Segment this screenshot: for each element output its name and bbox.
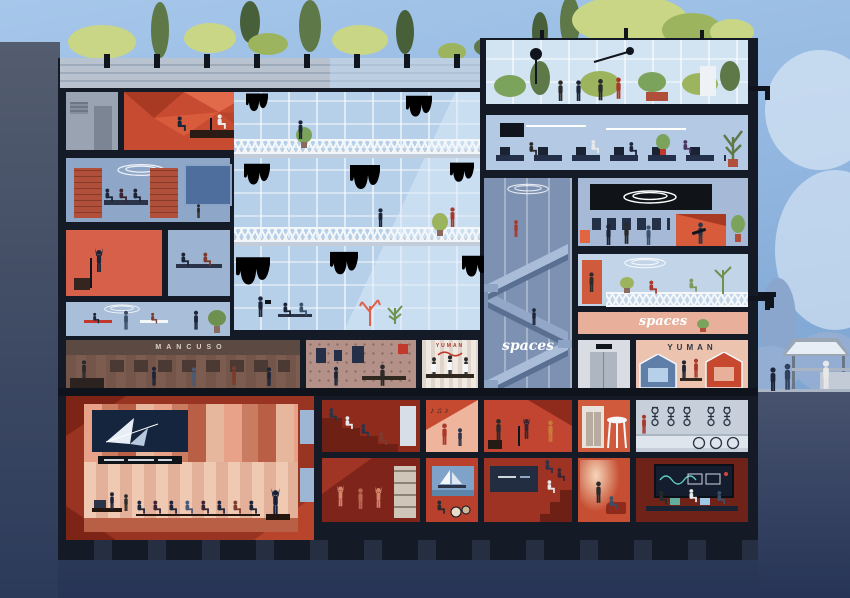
person-figure-photographer xyxy=(256,296,265,317)
plant xyxy=(618,276,636,294)
hanging-moss xyxy=(406,88,432,126)
person-figure xyxy=(108,492,116,510)
elevator-display xyxy=(596,344,612,349)
coral-plant xyxy=(358,296,382,326)
person-figure xyxy=(378,364,387,386)
person-figure xyxy=(682,139,692,154)
control-desk xyxy=(646,506,738,511)
person-figure xyxy=(574,80,583,101)
camera xyxy=(265,300,271,304)
sign-yuman-store: YUMAN xyxy=(422,343,478,349)
person-figure xyxy=(692,358,700,378)
roof-vent xyxy=(700,30,704,40)
person-figure-dancer xyxy=(336,484,345,507)
room-media xyxy=(426,458,478,522)
record-logo-scribble xyxy=(610,188,690,206)
bicycle-hanging xyxy=(650,402,660,432)
device-display xyxy=(334,350,342,361)
room-karaoke: ♪ ♫ ♪ xyxy=(426,400,478,452)
room-record-shop xyxy=(578,178,748,246)
person-figure xyxy=(296,120,305,139)
sidewalk-line xyxy=(752,389,850,392)
person-figure xyxy=(782,362,793,391)
sign-yuman-lounge: YUMAN xyxy=(636,343,748,352)
person-figure-guitarist xyxy=(494,418,503,441)
bike-wheels-row xyxy=(692,436,740,450)
person-figure xyxy=(202,252,212,266)
apron xyxy=(447,362,452,370)
room-cinema xyxy=(322,400,420,452)
facade-bracket xyxy=(748,296,774,312)
plant xyxy=(206,308,228,334)
screen-graphic xyxy=(100,414,180,448)
caption-dash xyxy=(104,459,124,461)
bicycle-hanging xyxy=(682,402,692,432)
person-figure xyxy=(456,428,464,446)
room-band xyxy=(484,400,572,452)
person-figure xyxy=(448,207,457,227)
facade-bracket xyxy=(748,86,774,102)
person-figure xyxy=(180,252,190,266)
person-figure xyxy=(298,302,308,316)
person-figure-drummer xyxy=(436,500,446,514)
plant xyxy=(430,212,450,238)
person-figure xyxy=(644,225,653,245)
room-yuman-lounge: YUMAN xyxy=(636,340,748,388)
person-figure xyxy=(194,204,203,218)
room-coworking xyxy=(168,230,230,296)
room-open-office xyxy=(486,115,748,170)
person-figure xyxy=(546,420,555,442)
mic-stand xyxy=(210,118,212,130)
vent-grille xyxy=(70,102,88,114)
room-elevator-lobby xyxy=(578,400,630,452)
person-figure-camera-operator xyxy=(596,78,605,101)
person-figure xyxy=(80,360,88,379)
person-figure xyxy=(184,500,194,514)
person-figure-singer xyxy=(522,416,531,440)
utility-door xyxy=(94,106,112,150)
person-figure xyxy=(544,460,554,473)
bookshelf xyxy=(150,168,178,218)
wall-tv xyxy=(500,123,524,137)
person-figure xyxy=(622,222,631,244)
roof-vent xyxy=(624,28,628,40)
person-figure-dancer xyxy=(374,486,383,508)
store-shelf xyxy=(110,360,290,372)
bicycle-hanging xyxy=(706,402,716,432)
plant-tall xyxy=(722,125,744,167)
left-wall xyxy=(0,42,60,598)
person-figure xyxy=(688,488,698,503)
elevator-door xyxy=(594,412,601,446)
parapet-posts xyxy=(60,54,480,68)
room-bike-storage xyxy=(636,400,748,452)
stair-core: spaces xyxy=(484,178,572,388)
stool-table xyxy=(606,414,628,450)
drum-kit xyxy=(450,502,472,518)
room-tech-store xyxy=(306,340,416,388)
device-display xyxy=(316,348,326,363)
person-figure-dancer xyxy=(356,488,365,509)
plant xyxy=(654,133,672,157)
balcony-railing xyxy=(234,139,480,154)
room-roof-greenhouse xyxy=(486,40,748,104)
room-yuman-store: YUMAN xyxy=(422,340,478,388)
lounge-screen xyxy=(490,466,538,492)
plant-sapling xyxy=(712,262,734,296)
person-figure xyxy=(378,432,388,445)
person-figure xyxy=(118,188,128,202)
person-figure xyxy=(440,422,449,446)
bicycle-hanging xyxy=(666,402,676,432)
screen-dash xyxy=(520,476,530,478)
foundation-columns xyxy=(58,540,758,560)
elevator-door xyxy=(590,352,604,388)
plant xyxy=(730,214,746,244)
monitor-glow xyxy=(700,498,710,505)
atrium xyxy=(234,92,480,330)
room-utility xyxy=(66,92,118,150)
amp-box xyxy=(488,440,502,449)
mixing-table xyxy=(92,508,122,512)
bicycle-hanging xyxy=(722,402,732,432)
booth-window xyxy=(300,468,314,502)
sailboat-graphic xyxy=(432,466,474,496)
person-figure xyxy=(820,358,832,391)
person-figure xyxy=(216,114,227,129)
apron xyxy=(463,364,468,372)
person-figure xyxy=(122,310,130,330)
person-figure xyxy=(640,414,648,434)
person-figure xyxy=(150,312,158,324)
chair-row-line xyxy=(136,514,260,516)
person-figure xyxy=(282,302,292,316)
mixer-gear xyxy=(94,500,106,508)
person-figure xyxy=(328,408,338,421)
guitar-booth xyxy=(676,214,726,246)
person-figure xyxy=(376,208,385,227)
podium xyxy=(266,514,290,520)
ground-below xyxy=(58,558,758,598)
atrium-sheen xyxy=(234,92,480,330)
building-cross-section-scene: MANCUSO YUMAN xyxy=(0,0,850,598)
stage-platform xyxy=(70,378,104,388)
person-figure xyxy=(92,312,100,324)
plant xyxy=(696,318,710,332)
person-figure xyxy=(152,500,162,514)
hall-floor xyxy=(84,518,298,532)
room-auditorium xyxy=(66,396,314,540)
projection-screen xyxy=(92,410,188,452)
person-figure xyxy=(768,366,778,392)
room-mancuso-store: MANCUSO xyxy=(66,340,300,388)
person-figure xyxy=(192,310,200,330)
media-screen xyxy=(432,466,474,496)
elevator-door-basement xyxy=(582,406,604,448)
person-figure xyxy=(122,494,130,511)
room-cafe xyxy=(66,302,230,336)
hanging-moss xyxy=(450,156,474,190)
sign-mancuso: MANCUSO xyxy=(126,344,256,351)
person-figure xyxy=(265,367,273,386)
person-figure xyxy=(546,480,556,493)
person-figure xyxy=(136,500,146,514)
street-slab xyxy=(58,388,758,396)
person-figure xyxy=(230,365,238,386)
person-figure xyxy=(530,308,538,325)
hanging-moss xyxy=(350,156,380,200)
bookshelf xyxy=(74,168,102,218)
lounge-steps xyxy=(540,478,572,522)
person-figure xyxy=(587,272,596,292)
person-figure xyxy=(200,500,210,514)
room-right-lounge xyxy=(578,254,748,306)
person-figure xyxy=(594,480,603,504)
staircase xyxy=(484,178,572,388)
screen-caption-bar xyxy=(98,456,182,464)
person-figure xyxy=(104,188,114,202)
ceiling-light-scribble xyxy=(610,256,680,270)
booth-window xyxy=(300,410,314,444)
person-figure xyxy=(150,366,158,386)
person-figure xyxy=(680,360,688,379)
hut-blue xyxy=(638,354,678,388)
person-figure xyxy=(332,366,340,386)
room-stepped-lounge xyxy=(484,458,572,522)
monitor-glow xyxy=(670,498,680,505)
person-figure xyxy=(604,224,613,245)
person-figure xyxy=(132,188,142,202)
person-figure xyxy=(232,500,242,514)
ceiling-light xyxy=(606,128,686,130)
person-figure xyxy=(190,367,198,386)
room-library xyxy=(66,158,230,222)
person-figure xyxy=(512,220,520,237)
equipment-cabinet xyxy=(394,466,416,518)
auditorium-hall xyxy=(84,404,298,532)
person-figure-singing xyxy=(94,248,104,272)
window-dark xyxy=(184,164,232,206)
hut-red xyxy=(704,352,744,388)
amp-box xyxy=(74,278,90,290)
caption-dash xyxy=(158,459,172,461)
person-figure xyxy=(556,468,566,481)
room-rehearsal xyxy=(66,230,162,296)
person-figure xyxy=(216,500,226,514)
roof-vent xyxy=(540,30,544,40)
mic-stand xyxy=(90,258,92,288)
mic-stand xyxy=(518,426,520,446)
device-display xyxy=(352,346,364,363)
apron xyxy=(431,364,436,372)
lounge-chair xyxy=(580,230,590,243)
hanging-moss xyxy=(330,244,358,284)
person-figure-actor xyxy=(614,76,623,100)
person-figure xyxy=(528,141,538,156)
room-control xyxy=(636,458,748,522)
ceiling-light xyxy=(526,125,586,127)
hanging-moss xyxy=(244,156,270,194)
logo-square xyxy=(398,344,408,354)
plant-fern xyxy=(384,300,406,328)
person-figure xyxy=(360,424,370,437)
person-figure xyxy=(168,500,178,514)
person-figure xyxy=(590,139,600,154)
hanging-moss xyxy=(246,88,268,118)
elevator-door xyxy=(604,352,617,388)
elevator-door xyxy=(586,412,593,446)
hanging-moss xyxy=(236,244,270,300)
person-figure-conductor xyxy=(270,488,281,514)
person-figure xyxy=(248,500,258,514)
person-figure xyxy=(658,490,668,505)
music-notes: ♪ ♫ ♪ xyxy=(430,406,476,415)
person-figure xyxy=(344,416,354,429)
person-figure xyxy=(176,116,187,131)
caption-dash xyxy=(128,459,154,461)
room-cozy-lounge xyxy=(578,458,630,522)
person-figure xyxy=(628,141,638,156)
person-figure xyxy=(688,278,698,292)
elevator-ground xyxy=(578,340,630,388)
sign-spaces-core: spaces xyxy=(484,338,572,354)
spaces-band: spaces xyxy=(578,312,748,334)
person-figure xyxy=(648,280,658,294)
person-figure xyxy=(716,490,726,505)
screen-dash xyxy=(498,476,516,478)
person-figure xyxy=(556,80,565,101)
ground-right xyxy=(752,392,850,598)
room-dance xyxy=(322,458,420,522)
person-figure xyxy=(608,496,618,509)
